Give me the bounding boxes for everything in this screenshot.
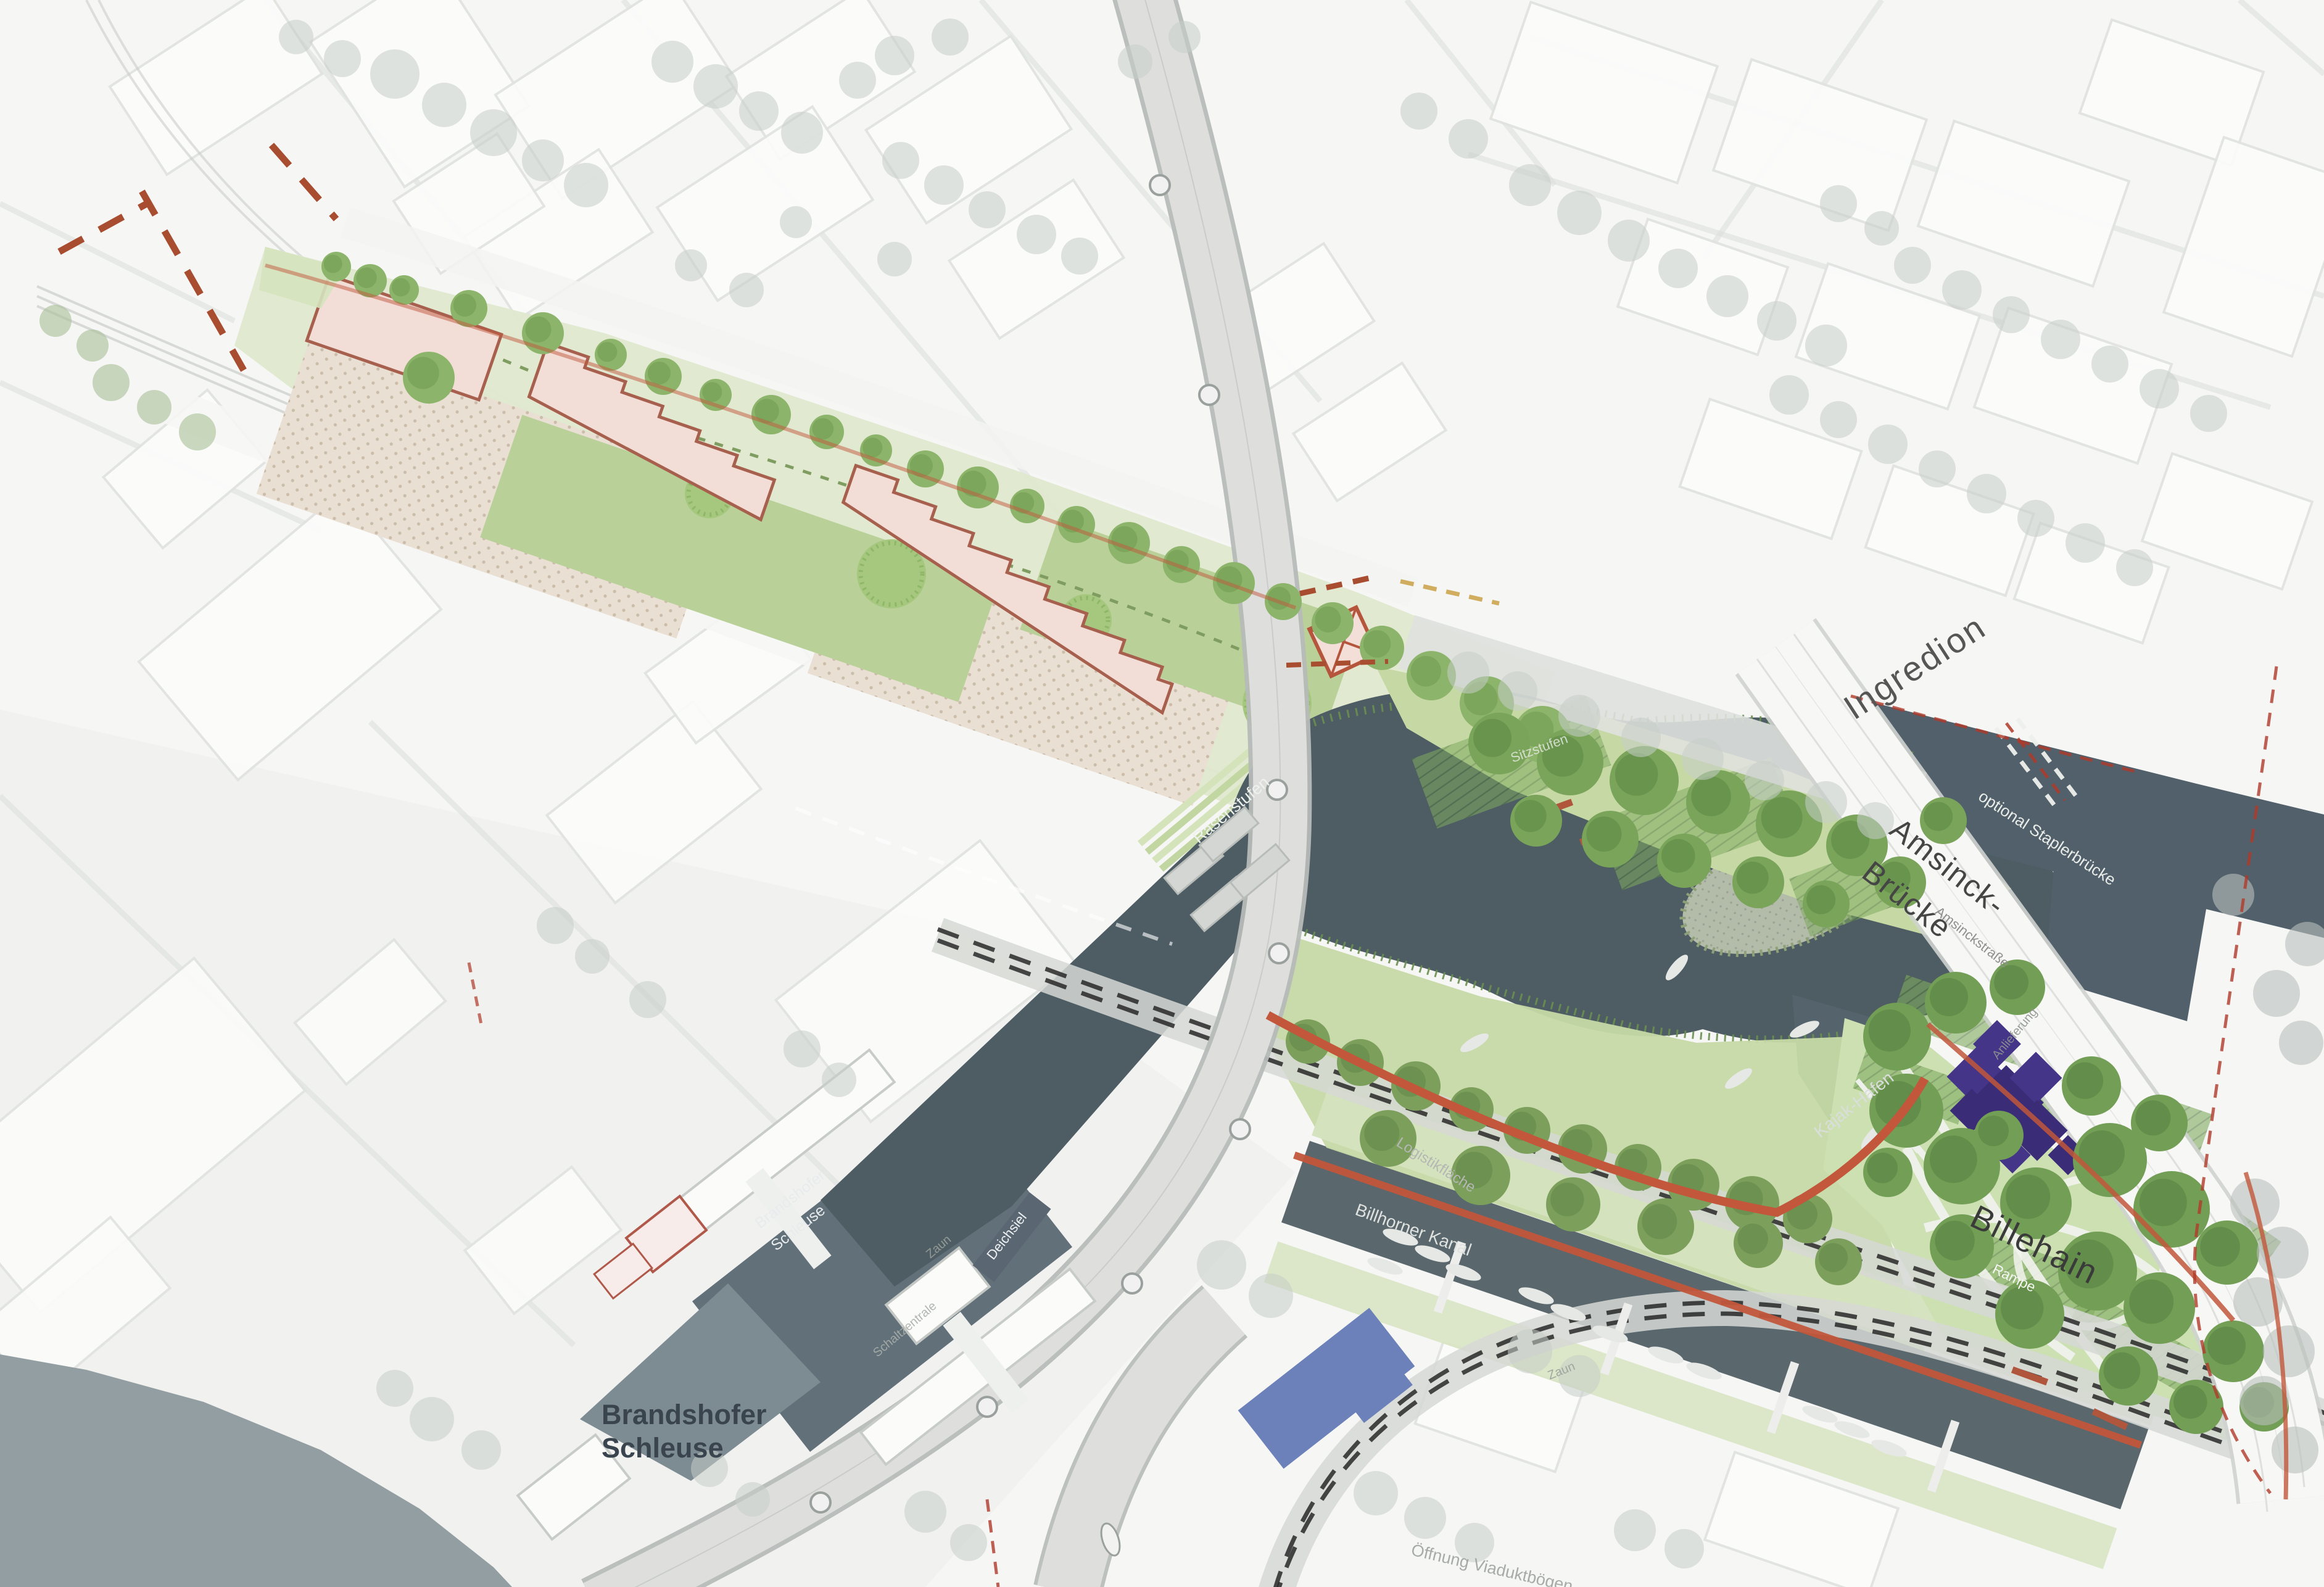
label-schleuse-title1: Brandshofer (602, 1399, 767, 1430)
site-plan-map: IngredionAmsinck-BrückeAmsinckstraßeopti… (0, 0, 2324, 1587)
label-schleuse-title2: Schleuse (602, 1432, 724, 1464)
site-plan-canvas: IngredionAmsinck-BrückeAmsinckstraßeopti… (0, 0, 2324, 1587)
